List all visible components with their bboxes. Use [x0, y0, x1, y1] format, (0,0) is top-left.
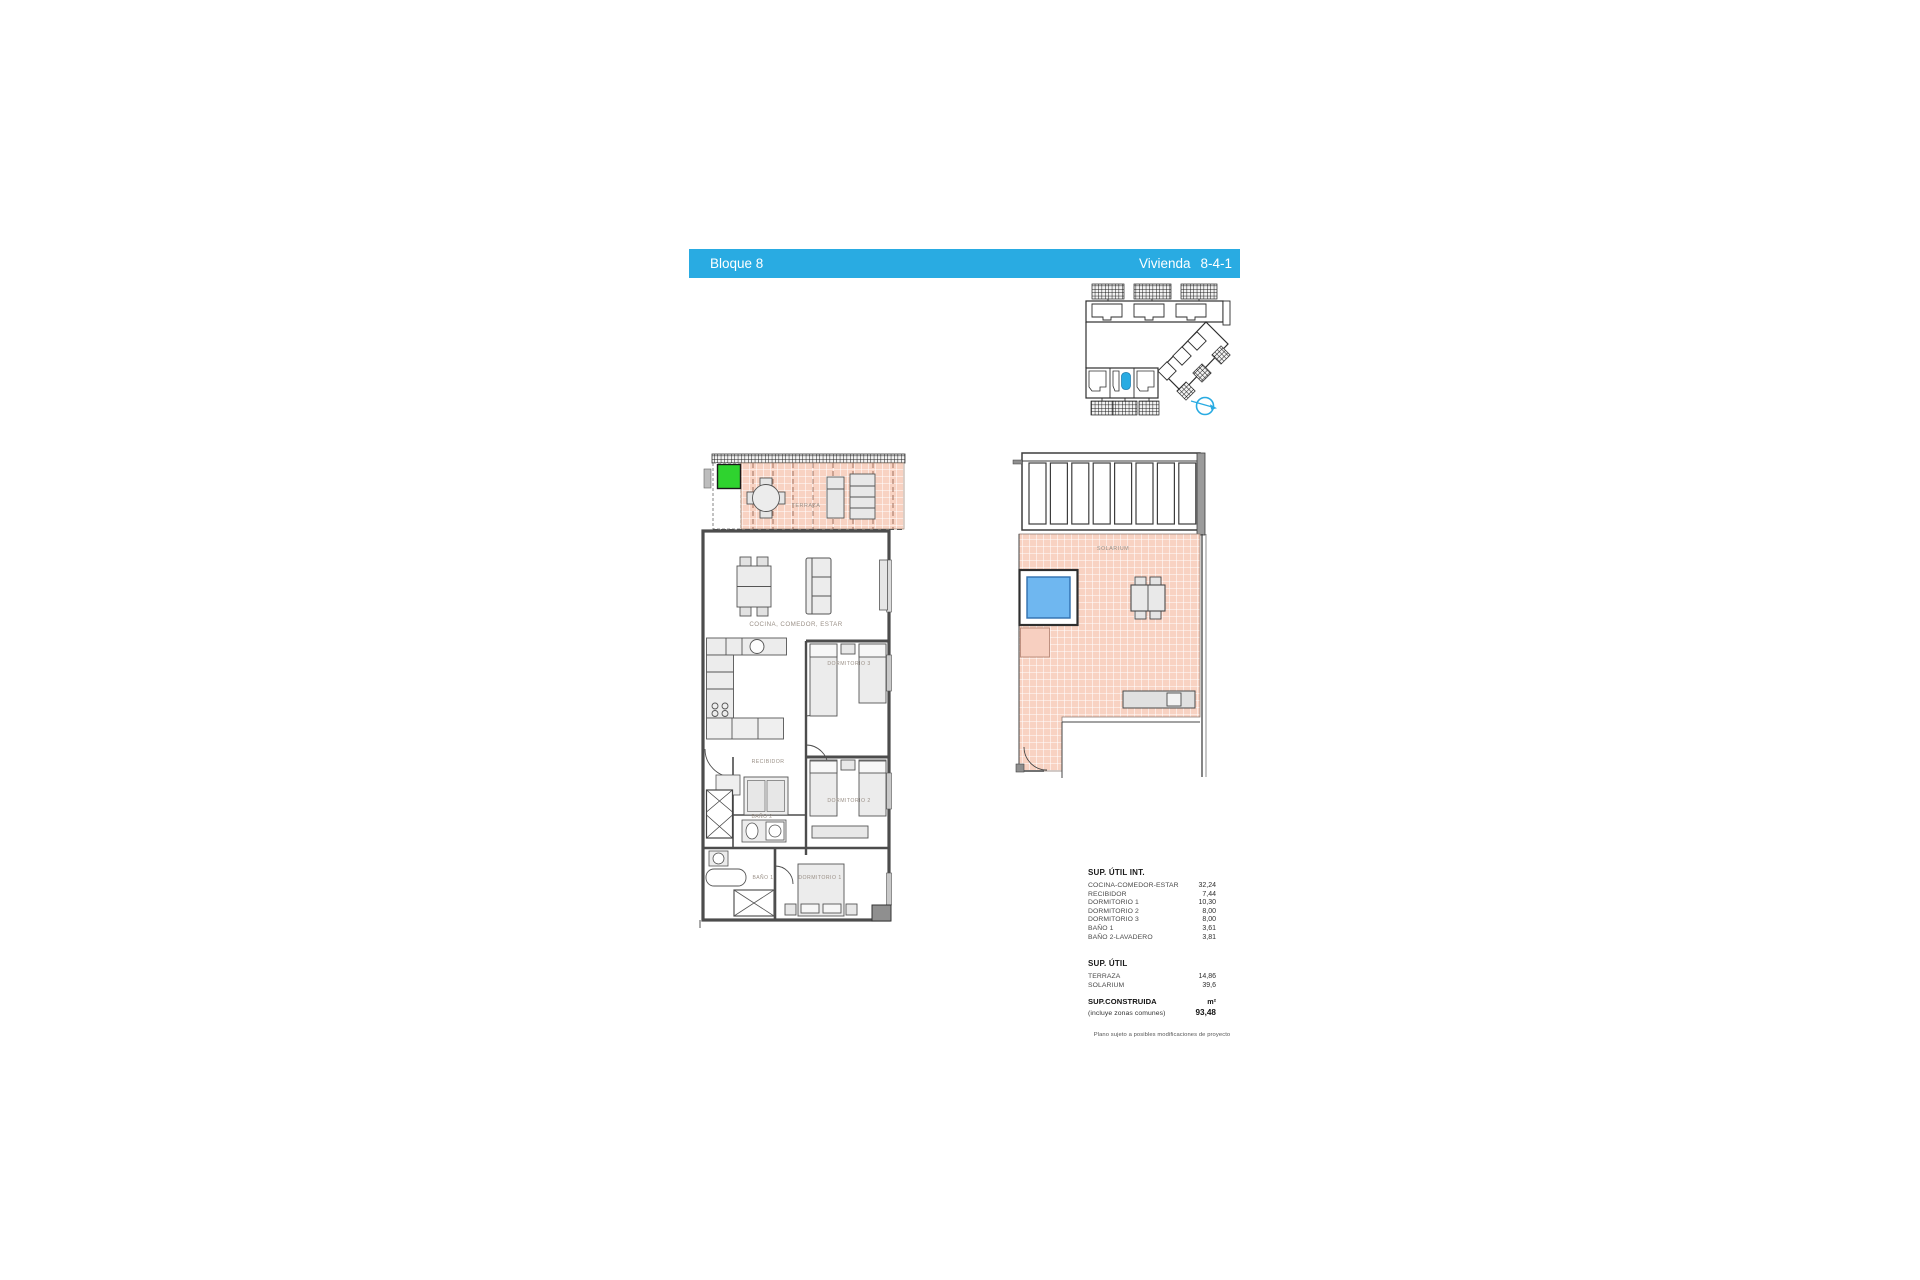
- table-row: BAÑO 2-LAVADERO 3,81: [1088, 934, 1216, 943]
- solarium-plan-svg: SOLARIUM: [1005, 448, 1240, 783]
- sofa: [806, 558, 831, 614]
- unit-title-value: 8-4-1: [1200, 256, 1232, 271]
- bedroom-3: DORMITORIO 3: [810, 644, 886, 716]
- hall-label: RECIBIDOR: [752, 759, 785, 765]
- kitchen-sink: [750, 640, 764, 654]
- washbasin: [713, 853, 724, 864]
- bedroom-2: DORMITORIO 2: [810, 760, 886, 838]
- terrace-label: TERRAZA: [792, 503, 821, 509]
- keyplan-top-row: [1086, 301, 1230, 325]
- table-row: COCINA-COMEDOR-ESTAR 32,24: [1088, 882, 1216, 891]
- terrace-highlight-square: [718, 465, 741, 489]
- sheet-title-bar: Bloque 8 Vivienda 8-4-1: [689, 249, 1240, 278]
- solarium-label: SOLARIUM: [1097, 546, 1129, 552]
- unit-title-name: Vivienda: [1139, 256, 1191, 271]
- table-row: DORMITORIO 2 8,00: [1088, 908, 1216, 917]
- key-plan-svg: [1080, 280, 1250, 430]
- bathroom2-label: BAÑO 2: [751, 813, 772, 820]
- terrace-pillar: [704, 469, 711, 488]
- planter: [1021, 628, 1050, 657]
- keyplan-bottom-row: [1086, 322, 1158, 398]
- unit-location-highlight: [1122, 373, 1131, 390]
- table-row: BAÑO 1 3,61: [1088, 925, 1216, 934]
- wardrobe: [744, 777, 788, 815]
- areas-util-title: SUP. ÚTIL: [1088, 959, 1216, 968]
- bedroom1-label: DORMITORIO 1: [798, 875, 841, 881]
- floor-plan-svg: TERRAZA: [685, 448, 920, 928]
- areas-table: SUP. ÚTIL INT. COCINA-COMEDOR-ESTAR 32,2…: [1088, 868, 1216, 1019]
- terrace-loungers: [827, 474, 875, 519]
- living-label: COCINA, COMEDOR, ESTAR: [749, 621, 842, 628]
- disclaimer-note: Plano sujeto a posibles modificaciones d…: [1092, 1032, 1232, 1038]
- washbasin: [746, 823, 758, 839]
- solarium-bench: [1123, 691, 1195, 708]
- table-row: TERRAZA 14,86: [1088, 973, 1216, 982]
- areas-util-int-title: SUP. ÚTIL INT.: [1088, 868, 1216, 877]
- table-row: DORMITORIO 3 8,00: [1088, 916, 1216, 925]
- entry-door-arc: [705, 749, 733, 777]
- table-row: RECIBIDOR 7,44: [1088, 891, 1216, 900]
- bedroom2-label: DORMITORIO 2: [827, 798, 870, 804]
- keyplan-diagonal-wing: [1158, 322, 1230, 400]
- bathroom-2: BAÑO 2: [742, 813, 786, 842]
- unit-title: Vivienda 8-4-1: [1139, 256, 1232, 271]
- pool: [1020, 570, 1078, 625]
- terrace: TERRAZA: [704, 454, 905, 530]
- block-title: Bloque 8: [710, 256, 763, 271]
- built-area-value-row: (incluye zonas comunes) 93,48: [1088, 1008, 1216, 1019]
- table-row: SOLARIUM 39,6: [1088, 982, 1216, 991]
- media-unit: [880, 560, 888, 610]
- dining-table: [737, 557, 771, 616]
- keyplan-panels-bottom: [1091, 398, 1159, 415]
- shaft: [707, 790, 733, 838]
- bathroom1-label: BAÑO 1: [752, 874, 773, 881]
- bathtub: [706, 869, 746, 886]
- built-area-row: SUP.CONSTRUIDA m²: [1088, 997, 1216, 1008]
- kitchen-counter: [707, 638, 787, 739]
- keyplan-panels-top: [1092, 284, 1217, 302]
- bedroom1-door-arc: [775, 866, 793, 884]
- bedroom-1: DORMITORIO 1: [785, 864, 857, 916]
- table-row: DORMITORIO 1 10,30: [1088, 899, 1216, 908]
- north-arrow-icon: [1191, 398, 1217, 415]
- bedroom3-label: DORMITORIO 3: [827, 661, 870, 667]
- pergola: [1013, 453, 1205, 535]
- bathroom-1: BAÑO 1: [706, 851, 774, 916]
